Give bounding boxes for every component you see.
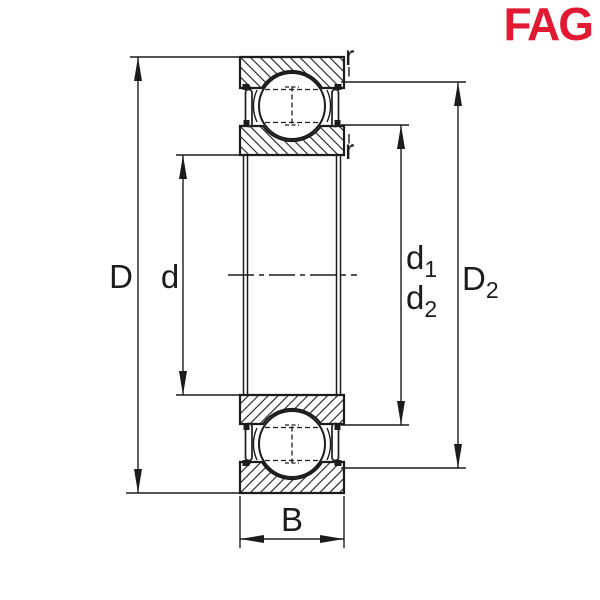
- bearing-section-bottom: [240, 395, 344, 493]
- shield-anchor: [335, 424, 341, 430]
- arrowhead-up: [179, 155, 187, 179]
- bearing-section-top: [240, 57, 344, 155]
- arrowhead-up: [454, 82, 462, 106]
- arrowhead-down: [179, 371, 187, 395]
- cage-edge-left: [253, 428, 257, 460]
- shield-anchor: [244, 120, 250, 126]
- dim-D-label: D: [109, 258, 133, 295]
- shield-anchor: [335, 120, 341, 126]
- cage-edge-left: [253, 90, 257, 122]
- arrowhead-down: [134, 469, 142, 493]
- dim-D2-label: D2: [462, 260, 499, 303]
- shield-anchor: [243, 84, 250, 90]
- arrowhead-down: [454, 444, 462, 468]
- drawing-page: FAG: [0, 0, 600, 600]
- shield-anchor: [243, 460, 250, 466]
- dimension-D2: [341, 82, 466, 468]
- arrowhead-up: [397, 125, 405, 149]
- dim-d-label: d: [161, 258, 179, 295]
- dim-d1-label: d1: [406, 239, 437, 282]
- radius-label-bottom: r: [345, 134, 354, 165]
- dim-d2-label: d2: [406, 279, 437, 322]
- arrowhead-left: [240, 535, 264, 543]
- bearing-drawing: D d d1 d2: [0, 0, 600, 600]
- shield-anchor: [335, 84, 342, 90]
- cage-edge-right: [327, 90, 331, 122]
- dim-B-label: B: [281, 501, 303, 538]
- shield-anchor: [244, 424, 250, 430]
- arrowhead-down: [397, 401, 405, 425]
- cage-edge-right: [327, 428, 331, 460]
- arrowhead-up: [134, 57, 142, 81]
- arrowhead-right: [320, 535, 344, 543]
- shield-anchor: [335, 460, 342, 466]
- radius-label-top: r: [345, 40, 354, 71]
